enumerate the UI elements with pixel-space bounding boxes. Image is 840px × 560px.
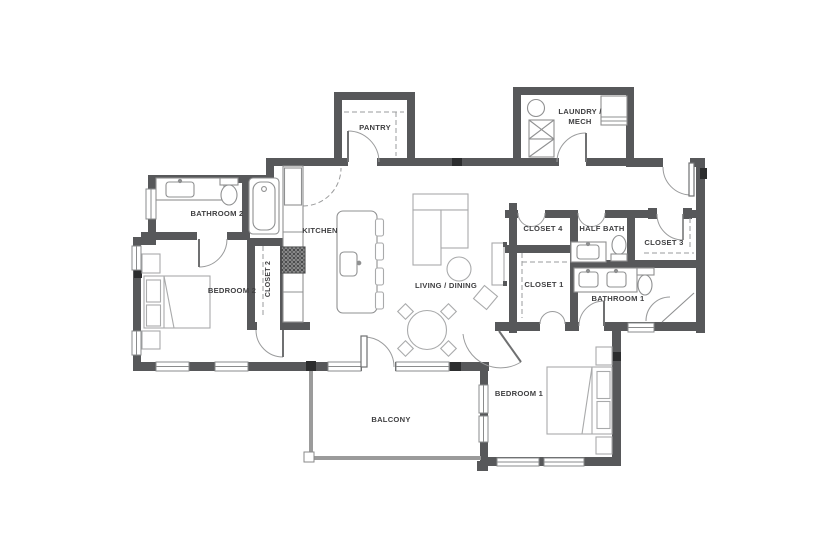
faucet-icon: [586, 242, 589, 245]
side-table-icon: [447, 257, 471, 281]
pillow-icon: [147, 280, 161, 302]
accent-table-icon: [474, 286, 498, 310]
island-sink-icon: [340, 252, 357, 276]
toilet-tank-icon: [220, 178, 238, 185]
dining-chair-icon: [441, 341, 457, 357]
window: [479, 416, 488, 442]
closet4-label: CLOSET 4: [523, 224, 563, 233]
sink-icon: [607, 272, 626, 287]
door-swing: [579, 301, 604, 326]
window: [156, 362, 189, 371]
toilet-icon: [612, 236, 626, 255]
floor-plan: PANTRY LAUNDRY / MECH BATHROOM 2 KITCHEN…: [0, 0, 840, 560]
sofa-seat: [441, 210, 468, 248]
tv-console-icon: [492, 243, 504, 285]
bedroom2-label: BEDROOM 2: [208, 286, 256, 295]
nightstand-icon: [596, 437, 612, 454]
bathroom2-fixtures: [156, 178, 279, 234]
bar-stool-icon: [376, 243, 384, 260]
bathroom1-label: BATHROOM 1: [592, 294, 646, 303]
pillow-icon: [597, 372, 610, 399]
bedroom1-label: BEDROOM 1: [495, 389, 544, 398]
faucet-icon: [586, 269, 589, 272]
door-swing: [199, 239, 227, 267]
fridge-swing-dashed: [303, 168, 341, 206]
bar-stool-icon: [376, 268, 384, 285]
pillow-icon: [597, 402, 610, 429]
closet3-label: CLOSET 3: [644, 238, 683, 247]
window: [544, 458, 584, 466]
balcony-label: BALCONY: [371, 415, 410, 424]
faucet-icon: [178, 179, 181, 182]
pillow-icon: [147, 305, 161, 326]
pantry-label: PANTRY: [359, 123, 391, 132]
window: [146, 189, 156, 219]
dining-chair-icon: [398, 341, 414, 357]
window: [328, 362, 361, 371]
window: [479, 385, 488, 413]
laundry-label-line1: LAUNDRY /: [558, 107, 602, 116]
door-swing: [348, 131, 379, 162]
sofa-back: [413, 194, 468, 210]
dining-set: [398, 304, 457, 357]
toilet-icon: [638, 275, 652, 295]
nightstand-icon: [142, 254, 160, 273]
laundry-fixtures: [528, 96, 628, 157]
double-door-swing: [540, 312, 565, 325]
toilet-tank-icon: [611, 254, 627, 261]
faucet-icon: [614, 269, 617, 272]
laundry-label-line2: MECH: [568, 117, 591, 126]
sofa-chaise: [413, 210, 441, 265]
sink-icon: [579, 272, 598, 287]
faucet-icon: [357, 261, 361, 265]
window: [215, 362, 248, 371]
bathroom2-label: BATHROOM 2: [191, 209, 244, 218]
drain-icon: [262, 187, 267, 192]
window: [132, 331, 141, 355]
dining-chair-icon: [441, 304, 457, 320]
dining-table-icon: [408, 311, 447, 350]
refrigerator-icon: [285, 168, 302, 205]
bar-stool-icon: [376, 219, 384, 236]
kitchen-island: [337, 211, 384, 313]
door-swing: [557, 133, 586, 162]
toilet-icon: [221, 185, 237, 205]
floor-plan-canvas: PANTRY LAUNDRY / MECH BATHROOM 2 KITCHEN…: [0, 0, 840, 560]
half-bath-fixtures: [571, 236, 627, 263]
window: [628, 323, 654, 332]
window: [132, 246, 141, 270]
door-swing: [256, 330, 283, 357]
laundry-sink-icon: [528, 100, 545, 117]
nightstand-icon: [142, 331, 160, 349]
door-swing: [657, 214, 683, 240]
half-bath-label: HALF BATH: [579, 224, 624, 233]
kitchen-counter: [281, 166, 305, 322]
bedroom2-furniture: [142, 254, 210, 349]
window: [497, 458, 539, 466]
bar-stool-icon: [376, 292, 384, 309]
nightstand-icon: [596, 347, 612, 365]
closet1-label: CLOSET 1: [524, 280, 564, 289]
living-furniture: [398, 194, 507, 356]
sink-icon: [166, 182, 194, 197]
range-icon: [281, 247, 305, 273]
living-dining-label: LIVING / DINING: [415, 281, 477, 290]
closet2-label: CLOSET 2: [265, 261, 272, 297]
toilet-tank-icon: [637, 268, 654, 275]
sink-icon: [577, 245, 599, 259]
kitchen-label: KITCHEN: [302, 226, 338, 235]
bedroom1-furniture: [547, 347, 612, 454]
window: [396, 362, 449, 371]
entry-door-swing: [663, 163, 694, 196]
dining-chair-icon: [398, 304, 414, 320]
